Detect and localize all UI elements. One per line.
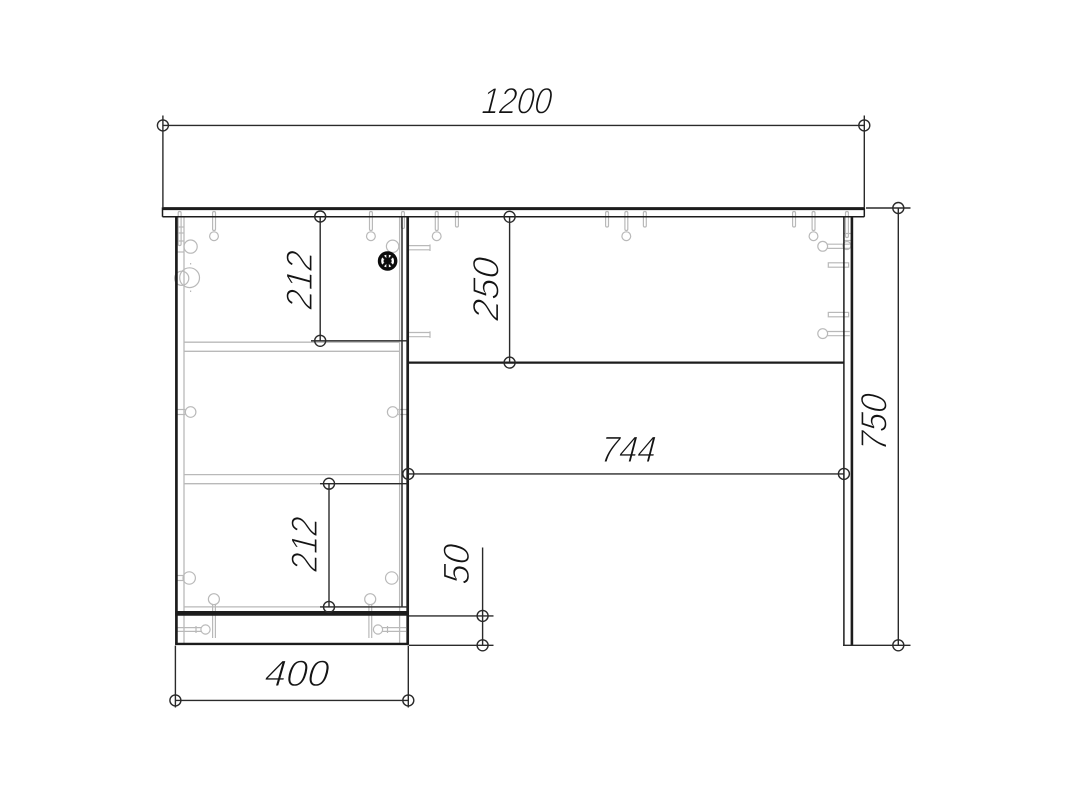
svg-text:1200: 1200 [480, 80, 554, 122]
svg-text:750: 750 [852, 391, 894, 452]
svg-text:50: 50 [435, 542, 477, 586]
svg-text:744: 744 [599, 428, 658, 470]
svg-text:212: 212 [278, 249, 320, 312]
svg-text:400: 400 [263, 652, 331, 694]
svg-text:212: 212 [283, 515, 325, 574]
svg-text:250: 250 [464, 255, 506, 323]
